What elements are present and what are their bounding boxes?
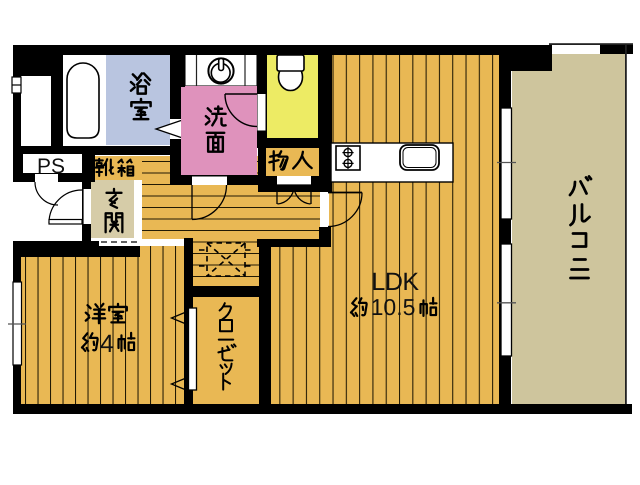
svg-text:10.5: 10.5 (371, 294, 416, 320)
svg-text:LDK: LDK (371, 268, 419, 296)
svg-text:4: 4 (100, 330, 114, 358)
